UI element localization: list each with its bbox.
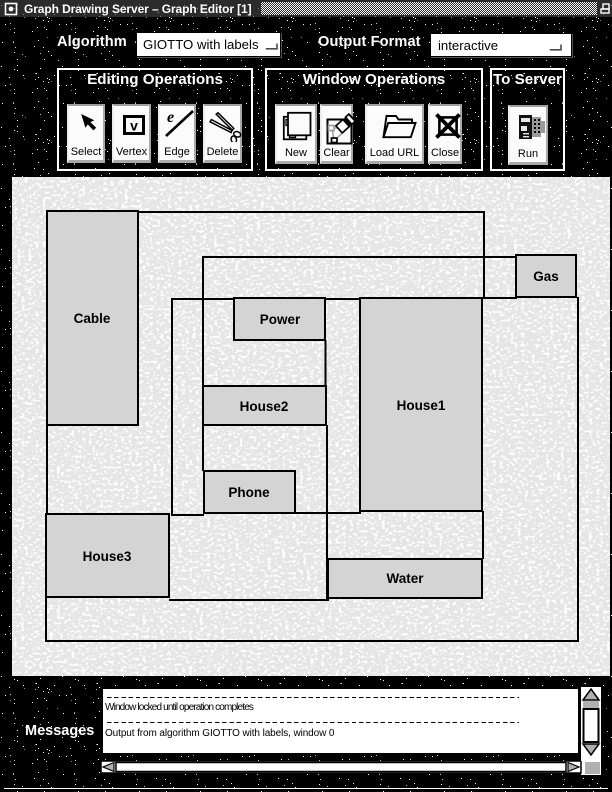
svg-text:Power: Power <box>260 312 301 327</box>
svg-text:e: e <box>167 109 174 126</box>
svg-text:v: v <box>130 118 138 134</box>
svg-text:House3: House3 <box>83 549 132 564</box>
svg-text:House2: House2 <box>240 399 289 414</box>
svg-text:Water: Water <box>386 571 424 586</box>
svg-text:Gas: Gas <box>533 269 559 284</box>
svg-text:House1: House1 <box>397 398 446 413</box>
svg-text:Cable: Cable <box>74 311 111 326</box>
svg-text:Phone: Phone <box>228 485 270 500</box>
